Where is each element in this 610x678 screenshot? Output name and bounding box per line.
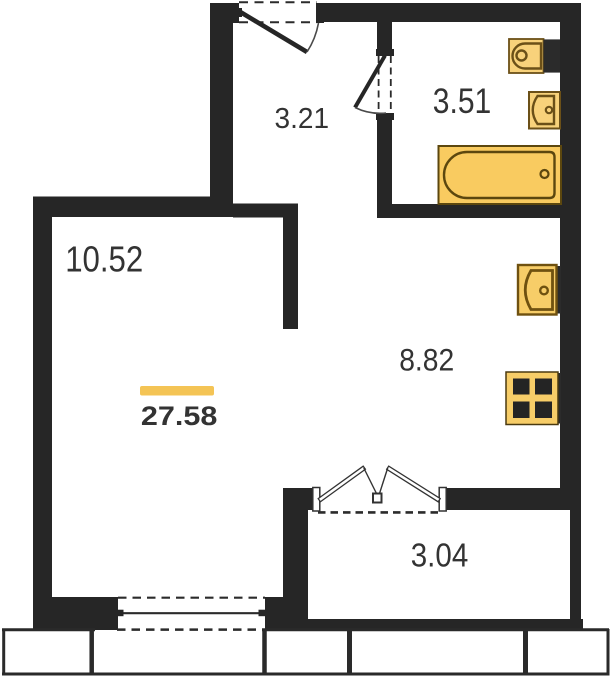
svg-text:10.52: 10.52 — [65, 239, 143, 280]
svg-text:3.21: 3.21 — [275, 103, 330, 135]
svg-text:27.58: 27.58 — [141, 401, 218, 431]
svg-text:3.04: 3.04 — [411, 537, 469, 574]
svg-text:3.51: 3.51 — [433, 82, 492, 121]
svg-text:8.82: 8.82 — [399, 342, 454, 378]
